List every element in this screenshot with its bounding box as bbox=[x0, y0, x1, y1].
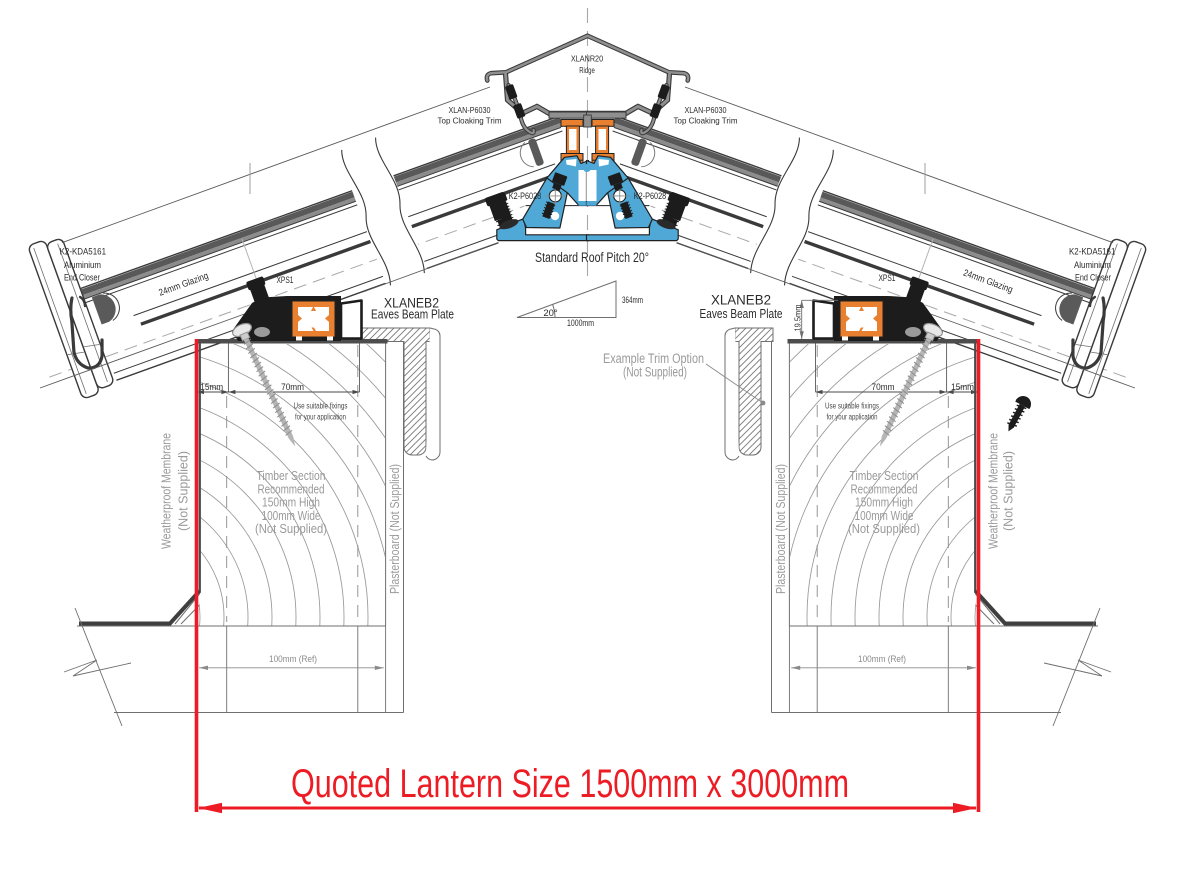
svg-text:End Closer: End Closer bbox=[64, 272, 100, 283]
svg-text:Eaves Beam Plate: Eaves Beam Plate bbox=[700, 307, 783, 321]
svg-text:for your application: for your application bbox=[295, 413, 346, 422]
svg-text:XLANR20: XLANR20 bbox=[571, 54, 604, 63]
svg-text:Aluminium: Aluminium bbox=[64, 260, 101, 271]
svg-text:70mm: 70mm bbox=[281, 382, 304, 393]
svg-text:Plasterboard (Not Supplied): Plasterboard (Not Supplied) bbox=[387, 464, 402, 594]
svg-text:End Closer: End Closer bbox=[1075, 272, 1111, 283]
svg-text:K2-KDA5161: K2-KDA5161 bbox=[1069, 247, 1115, 258]
svg-text:19.5mm: 19.5mm bbox=[794, 304, 803, 331]
svg-text:XLAN-P6030: XLAN-P6030 bbox=[449, 105, 491, 115]
svg-text:(Not Supplied): (Not Supplied) bbox=[623, 365, 687, 380]
svg-text:Weatherproof Membrane: Weatherproof Membrane bbox=[159, 433, 174, 549]
svg-text:XPS1: XPS1 bbox=[277, 275, 294, 286]
svg-text:Ridge: Ridge bbox=[579, 66, 595, 75]
svg-text:Eaves Beam Plate: Eaves Beam Plate bbox=[371, 308, 454, 322]
svg-text:Aluminium: Aluminium bbox=[1074, 260, 1111, 271]
svg-text:Weatherproof Membrane: Weatherproof Membrane bbox=[986, 433, 1001, 549]
svg-text:70mm: 70mm bbox=[872, 382, 895, 393]
svg-text:Top Cloaking Trim: Top Cloaking Trim bbox=[438, 116, 502, 126]
svg-text:Standard Roof Pitch 20°: Standard Roof Pitch 20° bbox=[535, 250, 649, 265]
svg-text:Plasterboard (Not Supplied): Plasterboard (Not Supplied) bbox=[773, 464, 788, 594]
svg-text:XPS1: XPS1 bbox=[879, 273, 896, 284]
svg-text:20°: 20° bbox=[543, 308, 558, 319]
svg-text:K2-KDA5161: K2-KDA5161 bbox=[60, 247, 106, 258]
svg-text:Use suitable fixings: Use suitable fixings bbox=[825, 402, 879, 411]
svg-text:Top Cloaking Trim: Top Cloaking Trim bbox=[674, 116, 738, 126]
svg-text:15mm: 15mm bbox=[200, 382, 223, 393]
svg-text:100mm (Ref): 100mm (Ref) bbox=[858, 654, 906, 665]
svg-text:364mm: 364mm bbox=[622, 295, 643, 306]
svg-text:(Not Supplied): (Not Supplied) bbox=[255, 521, 327, 536]
svg-text:XLANEB2: XLANEB2 bbox=[711, 292, 771, 307]
svg-text:(Not Supplied): (Not Supplied) bbox=[176, 451, 191, 531]
svg-text:100mm (Ref): 100mm (Ref) bbox=[269, 654, 317, 665]
svg-text:15mm: 15mm bbox=[951, 382, 974, 393]
svg-text:(Not Supplied): (Not Supplied) bbox=[848, 521, 920, 536]
svg-text:(Not Supplied): (Not Supplied) bbox=[1001, 451, 1016, 531]
svg-text:K2-P6028: K2-P6028 bbox=[509, 191, 542, 202]
svg-text:for your application: for your application bbox=[827, 413, 878, 422]
svg-text:Quoted Lantern Size 1500mm x 3: Quoted Lantern Size 1500mm x 3000mm bbox=[291, 762, 849, 806]
svg-text:Use suitable fixings: Use suitable fixings bbox=[294, 402, 348, 411]
svg-text:K2-P6028: K2-P6028 bbox=[634, 191, 667, 202]
svg-text:1000mm: 1000mm bbox=[567, 318, 594, 329]
svg-text:XLAN-P6030: XLAN-P6030 bbox=[685, 105, 727, 115]
